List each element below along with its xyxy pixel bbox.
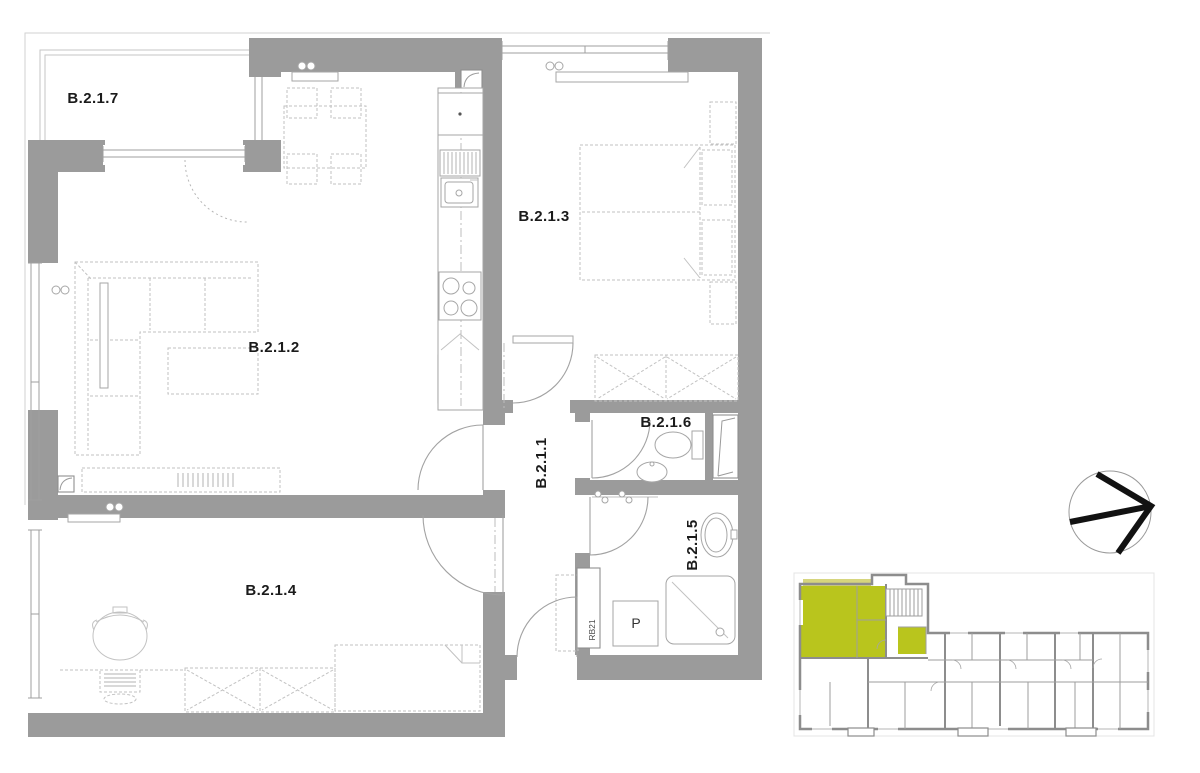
- single-bed: [335, 645, 480, 711]
- room-label-b213: B.2.1.3: [518, 208, 569, 225]
- highlighted-unit: [801, 586, 886, 658]
- highlighted-unit-room: [898, 627, 926, 654]
- shafts: [58, 70, 738, 492]
- staircase: [886, 589, 922, 616]
- hall-closet: [556, 575, 578, 651]
- kitchen: [438, 88, 483, 410]
- kitchen-sink: [441, 178, 478, 207]
- hand-basin: [637, 462, 667, 482]
- room-label-b215: B.2.1.5: [684, 519, 701, 570]
- room-labels: B.2.1.7 B.2.1.2 B.2.1.3 B.2.1.1 B.2.1.6 …: [67, 90, 701, 641]
- door-hall-bedroom1: [513, 336, 573, 403]
- desk: [100, 670, 140, 704]
- room-label-b217: B.2.1.7: [67, 90, 118, 107]
- room-bedroom-2: [60, 503, 480, 712]
- north-arrow-icon: [1069, 471, 1151, 553]
- door-hall-bedroom2: [423, 515, 503, 595]
- door-living-hall: [418, 425, 483, 490]
- toilet-shaft: [713, 415, 738, 478]
- wardrobe: [595, 355, 738, 401]
- room-living: [52, 62, 366, 492]
- wall-niche: [58, 476, 74, 492]
- floorplan-page: { "colors": { "wall": "#9b9b9b", "wallDa…: [0, 0, 1200, 773]
- room-bedroom-1: [546, 62, 738, 401]
- room-label-b211: B.2.1.1: [533, 437, 550, 488]
- balcony-side-window: [255, 77, 262, 140]
- entrance-door: [517, 597, 577, 680]
- wc: [655, 431, 703, 459]
- outer-boundary-lines: [25, 33, 770, 505]
- shaft-label: RB21: [587, 619, 597, 641]
- armchair: [93, 607, 148, 660]
- room-label-b212: B.2.1.2: [248, 339, 299, 356]
- building-overview-map: [794, 573, 1154, 736]
- nightstand: [710, 282, 736, 324]
- balcony-slider-window: [103, 145, 245, 165]
- door-bathroom: [590, 497, 648, 555]
- wardrobe: [185, 668, 335, 712]
- radiator: [546, 62, 688, 82]
- cooktop: [439, 272, 481, 320]
- floorplan-drawing: B.2.1.7 B.2.1.2 B.2.1.3 B.2.1.1 B.2.1.6 …: [0, 0, 1200, 773]
- fridge: [438, 93, 483, 135]
- shower: [666, 576, 735, 644]
- room-label-b216: B.2.1.6: [640, 414, 691, 431]
- kitchen-top-shaft: [461, 70, 482, 89]
- double-bed: [580, 145, 735, 280]
- dishwasher: [440, 150, 480, 176]
- room-balcony: [185, 160, 247, 222]
- washbasin: [701, 513, 737, 557]
- dining-set: [284, 88, 366, 184]
- room-label-b214: B.2.1.4: [245, 582, 296, 599]
- bedroom4-left-window: [28, 530, 42, 698]
- room-bathroom: [577, 491, 737, 648]
- windows: [28, 40, 668, 698]
- radiator: [52, 283, 108, 388]
- washer-label: P: [631, 615, 640, 631]
- coffee-table: [168, 348, 258, 394]
- bedroom-top-window: [502, 40, 668, 62]
- tv-sideboard: [82, 468, 280, 492]
- nightstand: [710, 102, 736, 144]
